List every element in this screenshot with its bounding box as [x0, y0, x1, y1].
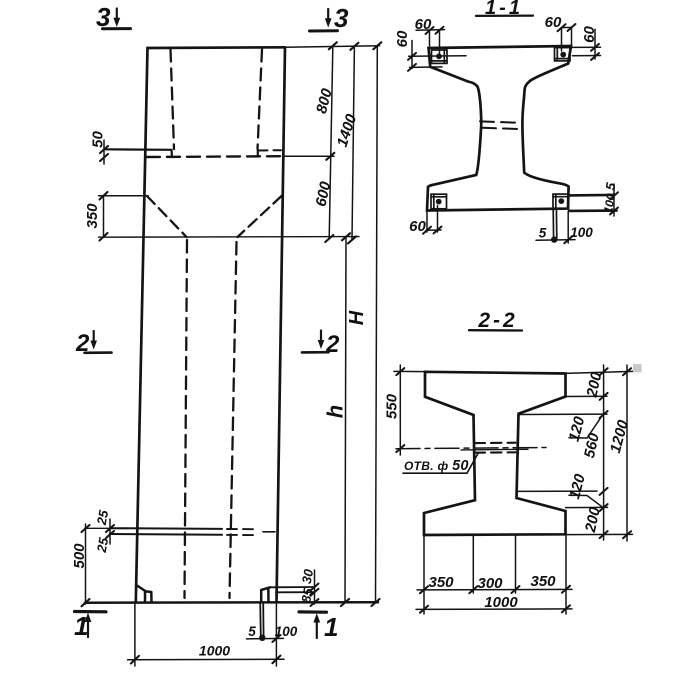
svg-text:2: 2 [325, 331, 340, 358]
svg-text:350: 350 [428, 574, 454, 591]
svg-text:50: 50 [90, 131, 107, 148]
svg-text:60: 60 [394, 30, 411, 47]
svg-text:5: 5 [539, 226, 547, 241]
svg-text:60: 60 [545, 14, 562, 31]
svg-text:30: 30 [299, 567, 316, 585]
svg-text:200: 200 [583, 370, 605, 400]
svg-text:3: 3 [334, 3, 349, 33]
svg-text:2: 2 [75, 330, 90, 357]
svg-text:1200: 1200 [607, 418, 632, 455]
svg-text:300: 300 [477, 575, 503, 592]
svg-text:60: 60 [581, 26, 598, 43]
svg-text:h: h [323, 405, 348, 418]
svg-text:1-1: 1-1 [485, 0, 523, 19]
svg-text:ОТВ. ф 50: ОТВ. ф 50 [404, 458, 469, 474]
svg-text:60: 60 [409, 218, 426, 235]
svg-text:800: 800 [313, 86, 336, 115]
svg-text:5: 5 [602, 181, 618, 191]
svg-text:1000: 1000 [484, 594, 518, 611]
svg-text:350: 350 [84, 203, 101, 229]
svg-text:350: 350 [530, 573, 556, 590]
svg-text:600: 600 [313, 179, 335, 208]
svg-text:560: 560 [581, 431, 603, 460]
svg-text:25: 25 [94, 508, 112, 527]
svg-text:120: 120 [566, 472, 589, 501]
svg-text:1: 1 [74, 611, 88, 641]
svg-text:100: 100 [275, 624, 298, 639]
svg-text:3: 3 [96, 2, 111, 32]
svg-text:5: 5 [248, 624, 256, 639]
svg-text:100: 100 [570, 225, 593, 240]
svg-text:1: 1 [324, 612, 338, 642]
svg-text:25: 25 [94, 536, 112, 555]
svg-text:2-2: 2-2 [477, 309, 517, 332]
svg-text:550: 550 [384, 393, 401, 419]
svg-text:1000: 1000 [199, 643, 230, 659]
svg-text:200: 200 [582, 505, 604, 535]
svg-text:1400: 1400 [334, 112, 361, 150]
svg-text:60: 60 [415, 16, 432, 33]
svg-text:H: H [346, 310, 368, 325]
svg-text:500: 500 [71, 543, 88, 569]
